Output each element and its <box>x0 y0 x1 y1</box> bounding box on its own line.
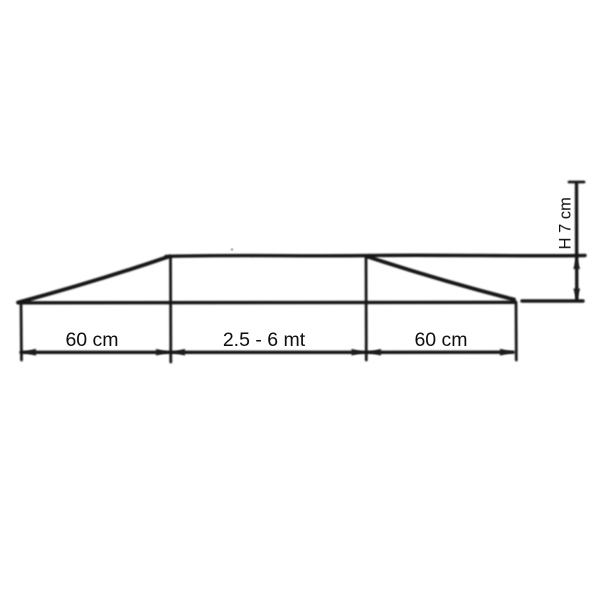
svg-text:60 cm: 60 cm <box>414 329 467 351</box>
svg-text:H 7 cm: H 7 cm <box>557 197 575 249</box>
svg-text:2.5 - 6 mt: 2.5 - 6 mt <box>223 329 306 351</box>
svg-text:60 cm: 60 cm <box>65 329 118 351</box>
